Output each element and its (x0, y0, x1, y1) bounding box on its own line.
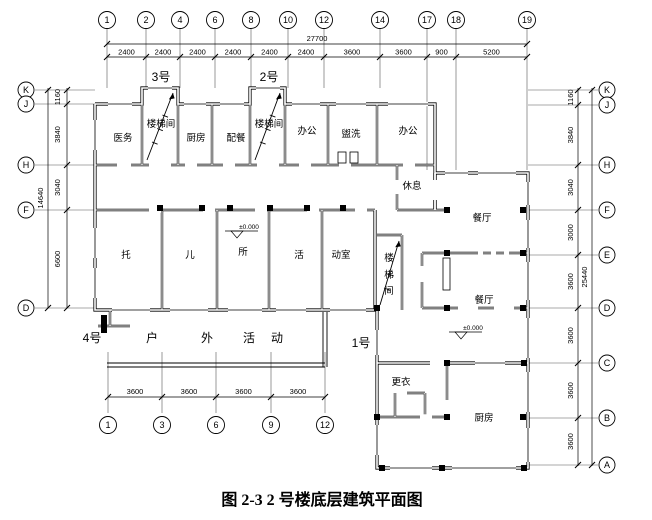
unit-label-3: 3号 (152, 70, 171, 84)
room-nursery-1: 托 (121, 249, 131, 261)
axis-right-label-E: E (604, 250, 610, 260)
axis-top-label-2: 2 (143, 15, 148, 25)
dim-bottom-seg-3: 3600 (290, 387, 307, 396)
room-stair-b: 楼梯间 (255, 118, 284, 130)
dim-right-seg-2: 3040 (566, 179, 575, 196)
room-changing: 更衣 (391, 376, 411, 388)
dim-top-seg-9: 5200 (483, 48, 500, 57)
level-marker-dining: ±0.000 (449, 325, 483, 339)
level-value-main: ±0.000 (239, 224, 259, 231)
axis-right-label-J: J (605, 100, 610, 110)
dim-top-seg-4: 2400 (261, 48, 278, 57)
room-stair-c-char2: 梯 (384, 269, 394, 281)
axis-bottom-label-1: 1 (105, 420, 110, 430)
axis-bottom-label-12: 12 (320, 420, 330, 430)
dim-top-seg-7: 3600 (395, 48, 412, 57)
axis-bottom-label-3: 3 (159, 420, 164, 430)
dimension-text-left: 1160 3840 3040 6600 14640 (36, 89, 62, 267)
dim-top-total: 27700 (307, 34, 328, 43)
dim-left-total: 14640 (36, 188, 45, 209)
axis-bubbles-left: K J H F D (18, 82, 34, 316)
axis-extension-lines (35, 29, 598, 465)
axis-left-label-J: J (24, 99, 29, 109)
dim-right-seg-3: 3000 (566, 224, 575, 241)
room-nursery-4: 活 (294, 249, 304, 261)
dimension-text-top: 27700 2400 2400 2400 2400 2400 2400 3600… (118, 34, 500, 57)
outer-walls-core (95, 88, 528, 468)
floor-plan-svg: ±0.000 ±0.000 1 2 4 6 8 10 12 14 17 18 1… (0, 0, 652, 520)
dim-right-total: 25440 (580, 267, 589, 288)
door-openings (117, 162, 514, 419)
room-kitchen: 厨房 (186, 132, 205, 144)
unit-label-4: 4号 (83, 331, 102, 345)
room-medical: 医务 (113, 132, 133, 144)
axis-top-label-8: 8 (248, 15, 253, 25)
dim-right-seg-7: 3600 (566, 433, 575, 450)
room-stair-a: 楼梯间 (147, 118, 176, 130)
dim-bottom-seg-0: 3600 (127, 387, 144, 396)
axis-right-label-A: A (604, 460, 610, 470)
room-pantry: 配餐 (226, 132, 246, 144)
dim-top-seg-0: 2400 (118, 48, 135, 57)
room-washroom: 盥洗 (341, 128, 361, 140)
partition-walls-core (95, 88, 528, 417)
outdoor-char-4: 动 (271, 331, 283, 345)
axis-right-label-B: B (604, 413, 610, 423)
room-office-b: 办公 (398, 125, 418, 137)
axis-top-label-10: 10 (283, 15, 293, 25)
axis-bottom-label-9: 9 (268, 420, 273, 430)
dim-left-seg-1: 3840 (53, 126, 62, 143)
unit-label-1: 1号 (352, 336, 371, 350)
dim-top-seg-6: 3600 (344, 48, 361, 57)
dim-left-seg-0: 1160 (53, 89, 62, 105)
dim-bottom-seg-2: 3600 (235, 387, 252, 396)
axis-bubbles-right: K J H F E D C B A (599, 82, 615, 473)
axis-top-label-19: 19 (522, 15, 532, 25)
dimension-text-right: 1160 3840 3040 3000 3600 3600 3600 3600 … (566, 89, 589, 449)
axis-top-label-14: 14 (375, 15, 385, 25)
axis-right-label-H: H (604, 160, 611, 170)
outdoor-activity-labels: 户 外 活 动 (146, 330, 283, 345)
axis-right-label-C: C (604, 358, 611, 368)
axis-bubbles-bottom: 1 3 6 9 12 (100, 417, 334, 434)
outer-walls (95, 88, 528, 468)
dim-top-seg-1: 2400 (155, 48, 172, 57)
fixtures (338, 152, 450, 290)
axis-top-label-18: 18 (451, 15, 461, 25)
unit-label-2: 2号 (260, 70, 279, 84)
room-rest: 休息 (402, 180, 421, 192)
dim-left-seg-3: 6600 (53, 251, 62, 268)
axis-left-label-D: D (23, 303, 30, 313)
dim-top-seg-8: 900 (435, 48, 448, 57)
room-dining-a: 餐厅 (472, 212, 492, 224)
room-stair-c-char3: 间 (384, 285, 394, 297)
outdoor-char-1: 户 (146, 330, 158, 345)
axis-top-label-1: 1 (104, 15, 109, 25)
figure-caption: 图 2-3 2 号楼底层建筑平面图 (221, 490, 422, 509)
room-office-a: 办公 (297, 125, 317, 137)
room-stair-c-char1: 楼 (384, 252, 394, 264)
room-nursery-2: 儿 (185, 250, 195, 261)
axis-bottom-label-6: 6 (213, 420, 218, 430)
dim-top-seg-5: 2400 (298, 48, 315, 57)
dim-bottom-seg-1: 3600 (181, 387, 198, 396)
dim-right-seg-5: 3600 (566, 327, 575, 344)
dim-right-seg-0: 1160 (566, 89, 575, 105)
level-value-dining: ±0.000 (463, 325, 483, 332)
dim-right-seg-1: 3840 (566, 127, 575, 144)
axis-right-label-F: F (604, 205, 610, 215)
level-marker-main: ±0.000 (225, 224, 259, 238)
axis-bubbles-top: 1 2 4 6 8 10 12 14 17 18 19 (99, 12, 536, 29)
dim-top-seg-3: 2400 (225, 48, 242, 57)
axis-left-label-F: F (23, 205, 29, 215)
terrace-lines (107, 312, 327, 367)
outdoor-char-2: 外 (201, 331, 213, 345)
dimension-text-bottom: 3600 3600 3600 3600 (127, 387, 307, 396)
floor-plan-figure: ±0.000 ±0.000 1 2 4 6 8 10 12 14 17 18 1… (0, 0, 652, 520)
dim-left-seg-2: 3040 (53, 179, 62, 196)
dim-right-seg-4: 3600 (566, 273, 575, 290)
dim-right-seg-6: 3600 (566, 382, 575, 399)
room-dining-b: 餐厅 (474, 294, 494, 306)
window-marks (93, 86, 530, 470)
room-nursery-3: 所 (238, 247, 248, 258)
axis-top-label-6: 6 (212, 15, 217, 25)
room-kitchen-b: 厨房 (474, 412, 493, 424)
room-nursery-5: 动室 (331, 249, 350, 261)
axis-right-label-D: D (604, 303, 611, 313)
dim-top-seg-2: 2400 (189, 48, 206, 57)
axis-top-label-12: 12 (319, 15, 329, 25)
axis-top-label-4: 4 (177, 15, 182, 25)
axis-left-label-K: K (23, 85, 29, 95)
outdoor-char-3: 活 (243, 331, 255, 345)
axis-right-label-K: K (604, 85, 610, 95)
axis-left-label-H: H (23, 160, 30, 170)
axis-top-label-17: 17 (422, 15, 432, 25)
